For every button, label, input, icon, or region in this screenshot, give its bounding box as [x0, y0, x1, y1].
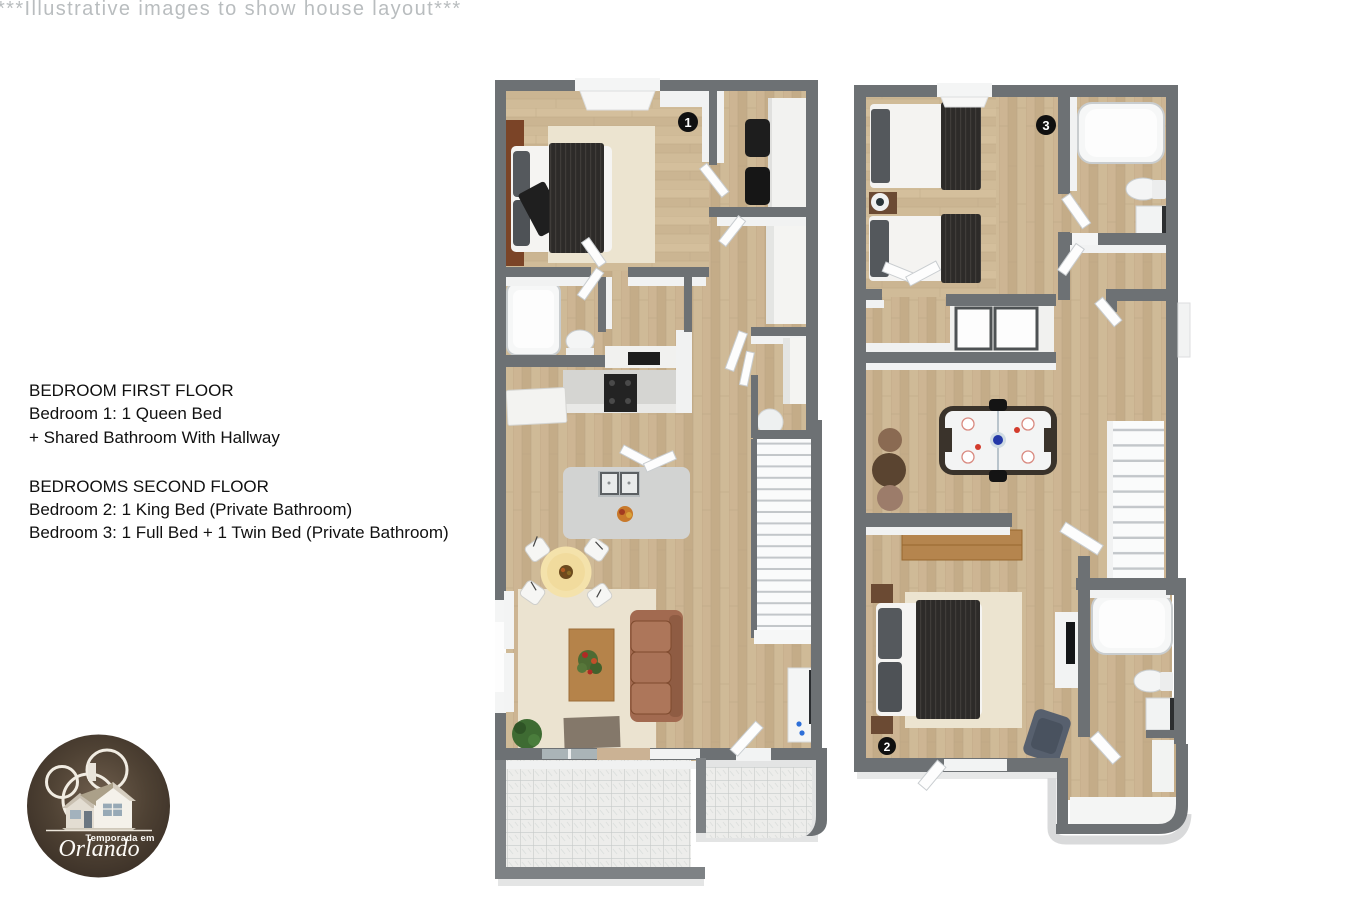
svg-text:Orlando: Orlando — [58, 836, 139, 862]
svg-text:1: 1 — [684, 115, 691, 130]
svg-text:2: 2 — [884, 740, 891, 754]
svg-text:3: 3 — [1042, 118, 1049, 133]
